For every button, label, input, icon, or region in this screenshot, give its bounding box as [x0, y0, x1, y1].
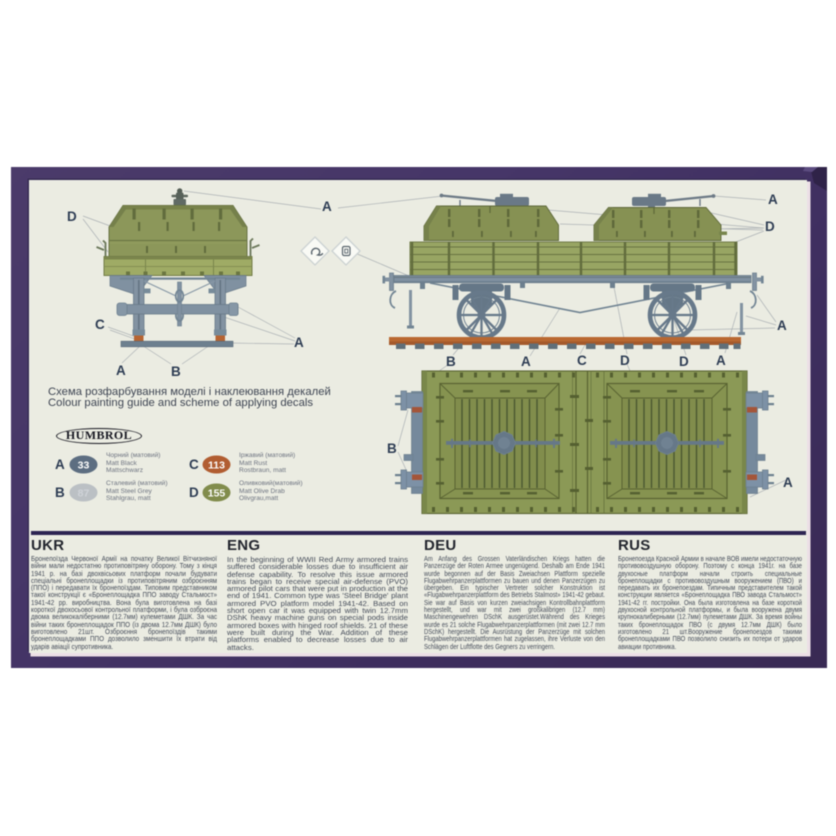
- svg-text:33: 33: [78, 460, 90, 472]
- svg-text:113: 113: [208, 460, 225, 472]
- svg-text:87: 87: [78, 488, 90, 500]
- svg-text:155: 155: [208, 488, 226, 500]
